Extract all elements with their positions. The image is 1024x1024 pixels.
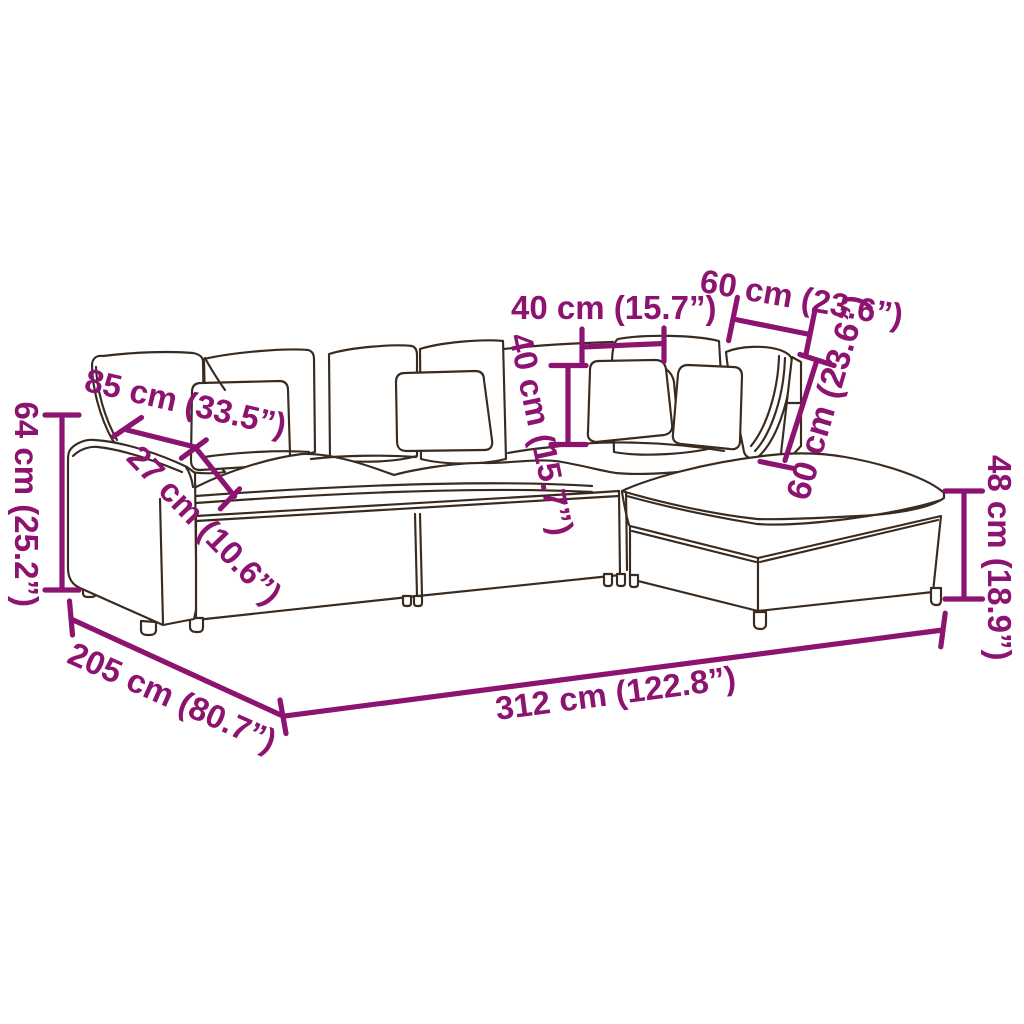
svg-text:64 cm (25.2”): 64 cm (25.2”) xyxy=(8,402,45,607)
svg-text:40 cm (15.7”): 40 cm (15.7”) xyxy=(511,289,716,326)
svg-text:48 cm (18.9”): 48 cm (18.9”) xyxy=(981,455,1018,660)
